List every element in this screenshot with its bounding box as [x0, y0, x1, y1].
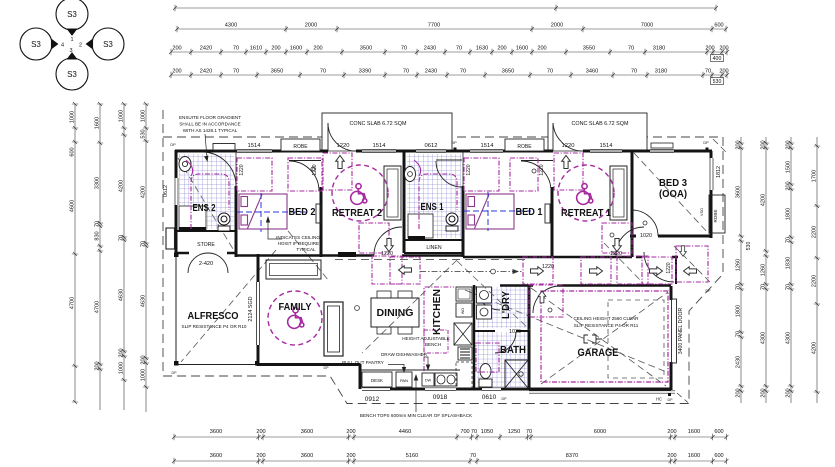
- svg-text:200: 200: [736, 140, 742, 149]
- svg-text:1220: 1220: [542, 264, 554, 270]
- svg-text:70: 70: [470, 453, 476, 459]
- svg-text:2: 2: [79, 43, 82, 49]
- svg-text:70: 70: [119, 235, 125, 241]
- svg-text:CEILING HEIGHT 2560 CLEAR: CEILING HEIGHT 2560 CLEAR: [573, 316, 639, 321]
- svg-text:70: 70: [471, 429, 477, 435]
- svg-text:70: 70: [705, 69, 711, 75]
- svg-text:KITCHEN: KITCHEN: [432, 289, 443, 335]
- svg-text:SHALL BE IN ACCORDANCE: SHALL BE IN ACCORDANCE: [179, 122, 240, 127]
- svg-text:1600: 1600: [688, 453, 700, 459]
- svg-text:200: 200: [667, 429, 676, 435]
- svg-text:4: 4: [61, 43, 64, 49]
- svg-text:70: 70: [460, 69, 466, 75]
- svg-text:1600: 1600: [516, 46, 528, 52]
- svg-text:200: 200: [119, 348, 125, 357]
- svg-text:600: 600: [70, 147, 76, 156]
- svg-text:3: 3: [69, 48, 72, 54]
- svg-text:200: 200: [172, 69, 181, 75]
- svg-text:4630: 4630: [141, 295, 147, 307]
- svg-text:70: 70: [456, 46, 462, 52]
- svg-text:PULL OUT PANTRY: PULL OUT PANTRY: [342, 360, 384, 365]
- svg-text:1220: 1220: [466, 164, 472, 175]
- svg-text:4700: 4700: [70, 297, 76, 309]
- svg-text:2430: 2430: [425, 69, 437, 75]
- svg-text:S3: S3: [31, 40, 41, 49]
- svg-text:4460: 4460: [399, 429, 411, 435]
- svg-text:530: 530: [713, 79, 722, 85]
- svg-text:200: 200: [172, 46, 181, 52]
- svg-text:3650: 3650: [502, 69, 514, 75]
- svg-text:0912: 0912: [365, 396, 380, 403]
- svg-text:700: 700: [460, 429, 469, 435]
- svg-text:LINEN: LINEN: [426, 245, 442, 251]
- svg-text:DINING: DINING: [377, 308, 414, 319]
- svg-text:4300: 4300: [225, 23, 237, 29]
- svg-text:1000: 1000: [141, 369, 147, 381]
- svg-text:200: 200: [786, 388, 792, 397]
- svg-text:200: 200: [761, 388, 767, 397]
- svg-text:DP: DP: [502, 397, 508, 401]
- svg-text:6000: 6000: [594, 429, 606, 435]
- svg-text:4300: 4300: [761, 332, 767, 344]
- svg-text:WITH AS 1428.1 TYPICAL: WITH AS 1428.1 TYPICAL: [183, 128, 238, 133]
- svg-text:70: 70: [401, 46, 407, 52]
- svg-text:TYPICAL: TYPICAL: [296, 247, 316, 252]
- svg-text:2124 SGD: 2124 SGD: [248, 296, 254, 321]
- svg-text:DP: DP: [706, 289, 712, 293]
- svg-text:70: 70: [547, 69, 553, 75]
- svg-text:3400 PANEL DOOR: 3400 PANEL DOOR: [678, 308, 684, 355]
- svg-text:3600: 3600: [301, 453, 313, 459]
- svg-text:1220: 1220: [239, 164, 245, 175]
- svg-text:70: 70: [786, 284, 792, 290]
- svg-text:2420: 2420: [200, 46, 212, 52]
- svg-text:1514: 1514: [373, 143, 387, 149]
- svg-text:4200: 4200: [812, 342, 818, 354]
- svg-text:70: 70: [761, 284, 767, 290]
- svg-text:1812: 1812: [716, 166, 722, 178]
- svg-text:200: 200: [786, 140, 792, 149]
- svg-text:1600: 1600: [290, 46, 302, 52]
- svg-text:CONC SLAB 6.72 SQM: CONC SLAB 6.72 SQM: [350, 121, 407, 127]
- svg-text:1610: 1610: [250, 46, 262, 52]
- svg-text:VSD: VSD: [699, 208, 704, 216]
- svg-text:1220: 1220: [381, 251, 393, 257]
- svg-text:0918: 0918: [433, 394, 448, 401]
- svg-text:4700: 4700: [95, 301, 101, 313]
- svg-text:1000: 1000: [141, 110, 147, 122]
- svg-text:200: 200: [667, 453, 676, 459]
- svg-text:BENCH TOPS 600mm MIN CLEAR OF: BENCH TOPS 600mm MIN CLEAR OF SPLASHBACK: [360, 413, 473, 418]
- svg-text:2-420: 2-420: [199, 261, 213, 267]
- svg-text:DRAW DISHWASHER: DRAW DISHWASHER: [381, 352, 428, 357]
- svg-text:200: 200: [537, 46, 546, 52]
- svg-text:70: 70: [233, 69, 239, 75]
- svg-text:1000: 1000: [119, 110, 125, 122]
- svg-text:2430: 2430: [736, 356, 742, 368]
- svg-text:DP: DP: [172, 371, 178, 375]
- svg-text:1000: 1000: [70, 111, 76, 123]
- svg-text:3600: 3600: [210, 453, 222, 459]
- svg-text:200: 200: [256, 429, 265, 435]
- svg-text:830: 830: [95, 231, 101, 240]
- svg-text:2000: 2000: [305, 23, 317, 29]
- svg-text:1800: 1800: [786, 208, 792, 220]
- svg-text:3550: 3550: [583, 46, 595, 52]
- svg-text:DP: DP: [703, 141, 709, 145]
- svg-text:BATH: BATH: [500, 345, 526, 356]
- svg-text:5160: 5160: [406, 453, 418, 459]
- svg-text:1220: 1220: [610, 251, 622, 257]
- svg-text:2000: 2000: [551, 23, 563, 29]
- svg-text:DP: DP: [170, 143, 176, 147]
- svg-text:L'DRY: L'DRY: [501, 291, 512, 319]
- svg-text:1050: 1050: [481, 429, 493, 435]
- svg-text:1700: 1700: [812, 170, 818, 182]
- svg-text:1830: 1830: [786, 257, 792, 269]
- svg-text:STORE: STORE: [197, 242, 215, 248]
- svg-text:1220: 1220: [312, 164, 318, 175]
- svg-text:ENSUITE FLOOR GRADIENT: ENSUITE FLOOR GRADIENT: [179, 115, 241, 120]
- svg-text:1: 1: [70, 37, 73, 43]
- svg-text:3300: 3300: [95, 177, 101, 189]
- svg-text:600: 600: [714, 23, 723, 29]
- svg-text:400: 400: [713, 56, 722, 62]
- svg-text:200: 200: [271, 46, 280, 52]
- svg-text:600: 600: [714, 453, 723, 459]
- svg-text:ALFRESCO: ALFRESCO: [188, 311, 239, 322]
- svg-text:70: 70: [320, 69, 326, 75]
- svg-text:600: 600: [714, 429, 723, 435]
- svg-text:HOIST IF REQUIRED: HOIST IF REQUIRED: [278, 241, 324, 246]
- svg-text:70: 70: [736, 284, 742, 290]
- svg-text:3600: 3600: [301, 429, 313, 435]
- svg-text:S3: S3: [67, 70, 77, 79]
- svg-text:70: 70: [95, 221, 101, 227]
- svg-text:3500: 3500: [360, 46, 372, 52]
- svg-text:DW: DW: [425, 379, 432, 383]
- svg-text:(OOA): (OOA): [659, 188, 687, 200]
- svg-text:7000: 7000: [641, 23, 653, 29]
- svg-text:8370: 8370: [566, 453, 578, 459]
- svg-text:70: 70: [628, 46, 634, 52]
- svg-text:70: 70: [736, 331, 742, 337]
- svg-text:ENS 2: ENS 2: [193, 202, 216, 214]
- svg-text:BED 2: BED 2: [289, 206, 316, 218]
- svg-text:200: 200: [346, 429, 355, 435]
- svg-text:1630: 1630: [476, 46, 488, 52]
- svg-text:4200: 4200: [761, 194, 767, 206]
- svg-text:200: 200: [313, 46, 322, 52]
- svg-text:200: 200: [705, 46, 714, 52]
- svg-text:4630: 4630: [119, 289, 125, 301]
- svg-text:7700: 7700: [428, 23, 440, 29]
- svg-text:RETREAT 1: RETREAT 1: [561, 207, 611, 219]
- svg-text:70: 70: [403, 69, 409, 75]
- svg-text:DP: DP: [451, 141, 457, 145]
- svg-text:HC: HC: [656, 397, 662, 402]
- svg-text:DP: DP: [668, 398, 674, 402]
- svg-text:2430: 2430: [424, 46, 436, 52]
- svg-text:BED 1: BED 1: [516, 206, 543, 218]
- svg-text:3600: 3600: [736, 186, 742, 198]
- svg-text:70: 70: [526, 429, 532, 435]
- svg-text:200: 200: [346, 453, 355, 459]
- svg-text:1020: 1020: [509, 329, 521, 335]
- svg-text:200: 200: [719, 46, 728, 52]
- svg-text:1500: 1500: [786, 161, 792, 173]
- svg-text:1000: 1000: [119, 362, 125, 374]
- svg-text:FAMILY: FAMILY: [279, 301, 312, 313]
- svg-text:CONC SLAB 6.72 SQM: CONC SLAB 6.72 SQM: [572, 121, 629, 127]
- svg-text:3460: 3460: [586, 69, 598, 75]
- svg-text:200: 200: [761, 140, 767, 149]
- svg-text:PAN: PAN: [400, 378, 408, 383]
- svg-text:1220: 1220: [666, 262, 672, 273]
- svg-text:1600: 1600: [95, 117, 101, 129]
- svg-text:INDICATES CEILING: INDICATES CEILING: [276, 235, 320, 240]
- svg-text:S3: S3: [67, 10, 77, 19]
- svg-text:3180: 3180: [655, 69, 667, 75]
- svg-text:DESK: DESK: [371, 378, 383, 383]
- svg-text:0612: 0612: [163, 185, 169, 197]
- svg-text:70: 70: [233, 46, 239, 52]
- svg-text:1220: 1220: [539, 164, 545, 175]
- svg-text:70: 70: [141, 241, 147, 247]
- svg-text:70: 70: [786, 237, 792, 243]
- svg-text:1600: 1600: [688, 429, 700, 435]
- svg-text:1514: 1514: [248, 143, 262, 149]
- svg-text:1800: 1800: [736, 305, 742, 317]
- svg-text:3180: 3180: [653, 46, 665, 52]
- svg-text:3390: 3390: [359, 69, 371, 75]
- svg-text:1514: 1514: [481, 143, 495, 149]
- svg-text:4300: 4300: [786, 332, 792, 344]
- svg-text:2420: 2420: [200, 69, 212, 75]
- svg-text:200: 200: [497, 46, 506, 52]
- svg-text:0610: 0610: [482, 394, 497, 401]
- svg-text:530: 530: [141, 129, 147, 138]
- svg-text:BENCH: BENCH: [425, 342, 441, 347]
- svg-text:1250: 1250: [508, 429, 520, 435]
- svg-text:200: 200: [719, 69, 728, 75]
- svg-text:1260: 1260: [736, 259, 742, 271]
- svg-text:HEIGHT ADJUSTABLE: HEIGHT ADJUSTABLE: [402, 336, 450, 341]
- svg-text:4600: 4600: [70, 200, 76, 212]
- svg-text:4200: 4200: [119, 180, 125, 192]
- svg-text:200: 200: [256, 453, 265, 459]
- svg-text:DP: DP: [324, 366, 330, 370]
- svg-text:ENS 1: ENS 1: [421, 201, 444, 213]
- svg-text:1020: 1020: [640, 233, 652, 239]
- svg-text:1514: 1514: [600, 143, 614, 149]
- svg-text:200: 200: [95, 361, 101, 370]
- svg-text:1260: 1260: [761, 264, 767, 276]
- svg-text:GARAGE: GARAGE: [578, 347, 619, 359]
- svg-text:ROBE: ROBE: [517, 144, 532, 150]
- svg-text:200: 200: [786, 181, 792, 190]
- svg-text:3650: 3650: [271, 69, 283, 75]
- svg-text:ROBE: ROBE: [293, 144, 308, 150]
- svg-text:200: 200: [141, 355, 147, 364]
- svg-text:SLIP RESISTANCE P4 OR R10: SLIP RESISTANCE P4 OR R10: [182, 324, 247, 329]
- svg-text:530: 530: [746, 242, 752, 251]
- svg-text:4200: 4200: [141, 186, 147, 198]
- svg-text:SLIP RESISTANCE P4 OR R11: SLIP RESISTANCE P4 OR R11: [574, 323, 639, 328]
- svg-text:70: 70: [631, 69, 637, 75]
- svg-text:200: 200: [736, 388, 742, 397]
- svg-text:2200: 2200: [812, 275, 818, 287]
- svg-text:2200: 2200: [812, 226, 818, 238]
- svg-text:0612: 0612: [425, 143, 438, 149]
- svg-text:ROBE: ROBE: [713, 209, 718, 222]
- svg-text:S3: S3: [103, 40, 113, 49]
- svg-text:RETREAT 2: RETREAT 2: [332, 207, 382, 219]
- svg-text:3600: 3600: [210, 429, 222, 435]
- svg-text:WO: WO: [461, 308, 465, 314]
